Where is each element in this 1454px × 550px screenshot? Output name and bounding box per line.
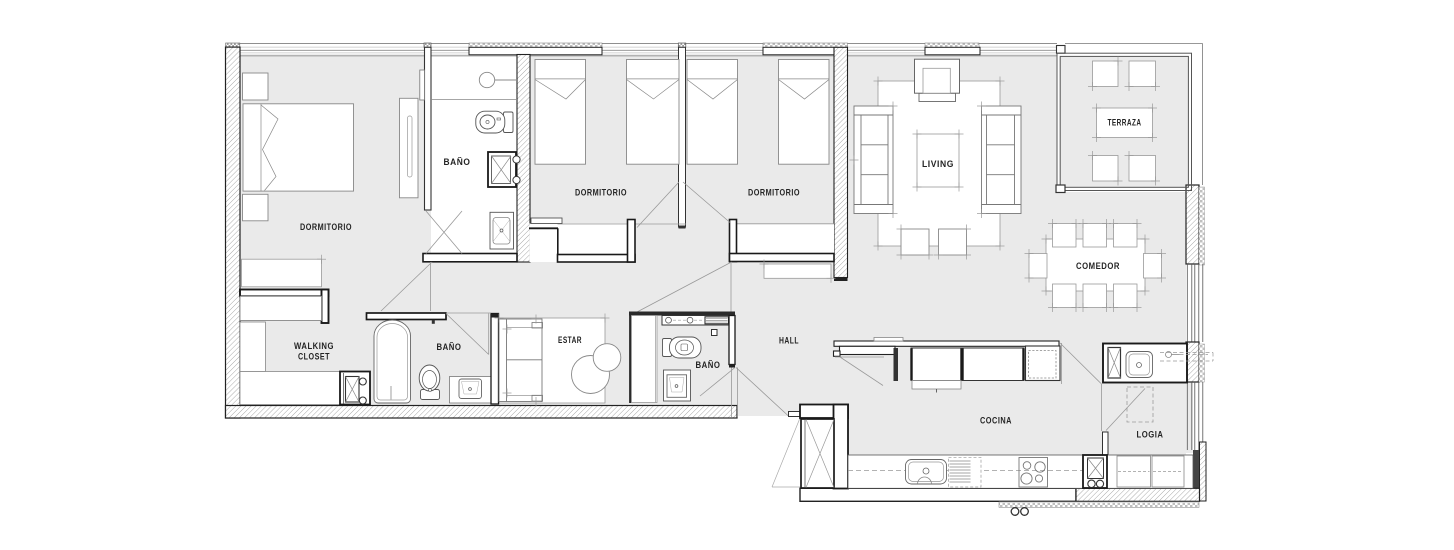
svg-text:LOGIA: LOGIA — [1137, 430, 1164, 440]
svg-text:HALL: HALL — [779, 336, 799, 346]
svg-text:BAÑO: BAÑO — [444, 157, 471, 167]
svg-text:LIVING: LIVING — [922, 159, 954, 169]
svg-text:ESTAR: ESTAR — [558, 335, 582, 345]
svg-text:TERRAZA: TERRAZA — [1108, 118, 1142, 128]
svg-text:COCINA: COCINA — [980, 416, 1012, 426]
svg-text:CLOSET: CLOSET — [298, 352, 330, 362]
svg-text:DORMITORIO: DORMITORIO — [575, 188, 627, 198]
svg-text:BAÑO: BAÑO — [437, 342, 462, 352]
svg-text:DORMITORIO: DORMITORIO — [300, 222, 352, 232]
svg-text:DORMITORIO: DORMITORIO — [748, 188, 800, 198]
svg-text:BAÑO: BAÑO — [696, 360, 721, 370]
svg-text:WALKING: WALKING — [294, 341, 334, 351]
svg-text:COMEDOR: COMEDOR — [1076, 261, 1120, 271]
